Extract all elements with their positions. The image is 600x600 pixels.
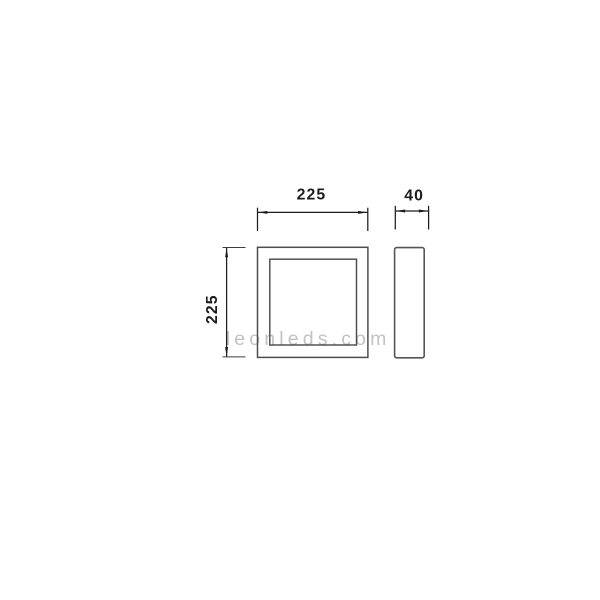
svg-text:leonleds.com: leonleds.com — [226, 328, 391, 350]
svg-text:225: 225 — [204, 294, 221, 324]
svg-text:225: 225 — [297, 187, 327, 204]
svg-text:40: 40 — [404, 188, 424, 205]
